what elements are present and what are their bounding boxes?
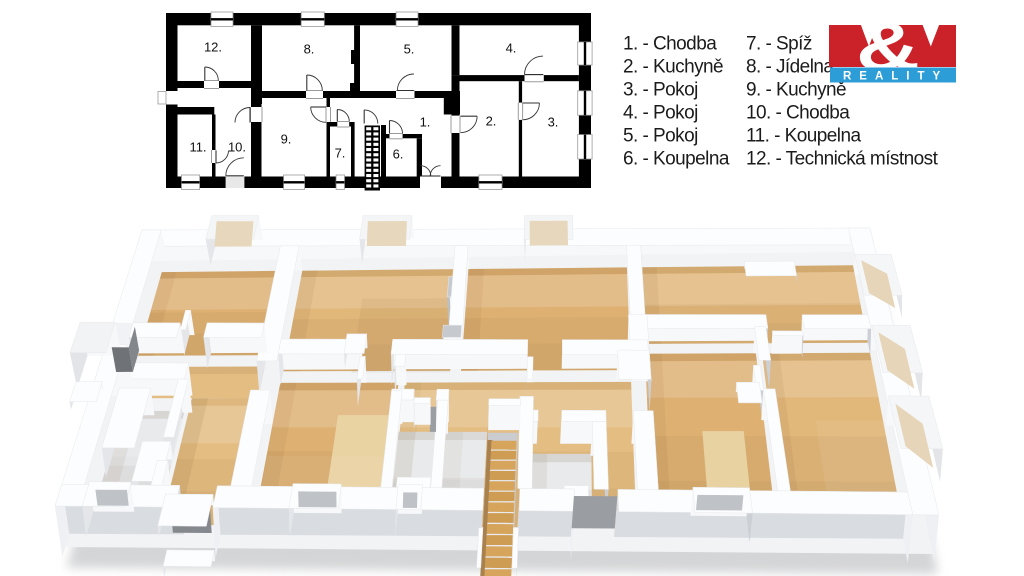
svg-text:4.: 4. [506,41,517,56]
svg-text:2. - Kuchyně: 2. - Kuchyně [623,57,723,78]
svg-text:5. - Pokoj: 5. - Pokoj [623,126,698,147]
svg-text:3. - Pokoj: 3. - Pokoj [623,80,698,101]
svg-text:10.: 10. [228,140,246,155]
svg-text:2.: 2. [486,114,497,129]
svg-text:4. - Pokoj: 4. - Pokoj [623,103,698,124]
svg-text:9.: 9. [281,132,292,147]
svg-text:11. - Koupelna: 11. - Koupelna [746,126,861,147]
svg-text:7.: 7. [335,146,346,161]
svg-text:10. - Chodba: 10. - Chodba [746,103,850,124]
svg-text:8.: 8. [304,42,315,57]
svg-text:8. - Jídelna: 8. - Jídelna [746,57,834,78]
svg-text:REALITY: REALITY [843,70,948,82]
svg-text:6. - Koupelna: 6. - Koupelna [623,149,730,170]
svg-text:6.: 6. [393,147,404,162]
svg-text:12.: 12. [204,40,222,55]
svg-text:1. - Chodba: 1. - Chodba [623,34,717,55]
svg-text:12. - Technická místnost: 12. - Technická místnost [746,149,939,170]
svg-text:3.: 3. [548,115,559,130]
svg-text:9. - Kuchyně: 9. - Kuchyně [746,80,846,101]
svg-text:5.: 5. [404,42,415,57]
svg-text:1.: 1. [420,115,431,130]
svg-text:11.: 11. [189,140,206,155]
svg-text:7. - Spíž: 7. - Spíž [746,34,812,55]
